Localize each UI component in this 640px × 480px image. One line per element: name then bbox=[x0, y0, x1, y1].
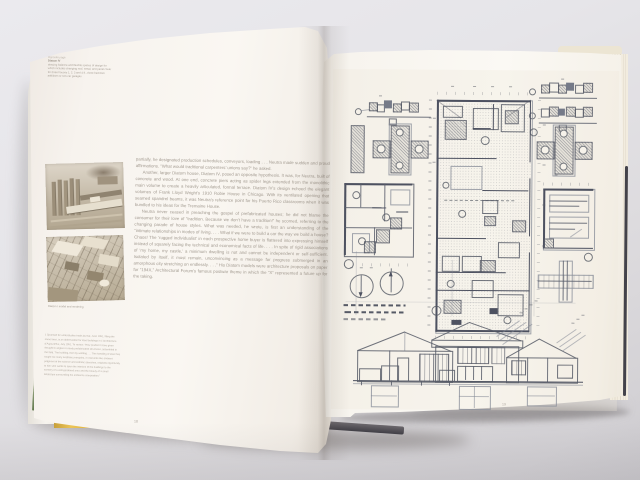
margin-caption: Opposite page Diatom IV drawing balance … bbox=[48, 56, 136, 80]
page-number-right: 19 bbox=[502, 403, 506, 407]
pier-cross-detail-left bbox=[372, 123, 426, 173]
square-floor-plan bbox=[344, 181, 417, 272]
book-photograph: Opposite page Diatom IV drawing balance … bbox=[0, 0, 640, 480]
framing-plan bbox=[540, 180, 599, 264]
model-photo-1 bbox=[45, 162, 125, 230]
pier-bar-detail bbox=[350, 125, 364, 173]
pier-cross-detail-right bbox=[536, 124, 590, 174]
module-strip-detail-1 bbox=[355, 99, 431, 126]
paragraph: Neutra never ceased in preaching the gos… bbox=[133, 208, 329, 284]
framing-cross-detail bbox=[538, 260, 594, 304]
model-photo-2 bbox=[46, 235, 125, 302]
body-text: partially, he designated production sche… bbox=[133, 156, 330, 284]
page-number-left: 18 bbox=[134, 420, 138, 424]
footnote: 1 Spanned for understudies trade journal… bbox=[44, 333, 121, 379]
drawing-sheet bbox=[331, 69, 619, 411]
main-floor-plan bbox=[427, 92, 541, 343]
paragraph: Another, larger Diatom house, Diatom IV,… bbox=[135, 169, 330, 212]
three-house-sections bbox=[343, 315, 594, 413]
